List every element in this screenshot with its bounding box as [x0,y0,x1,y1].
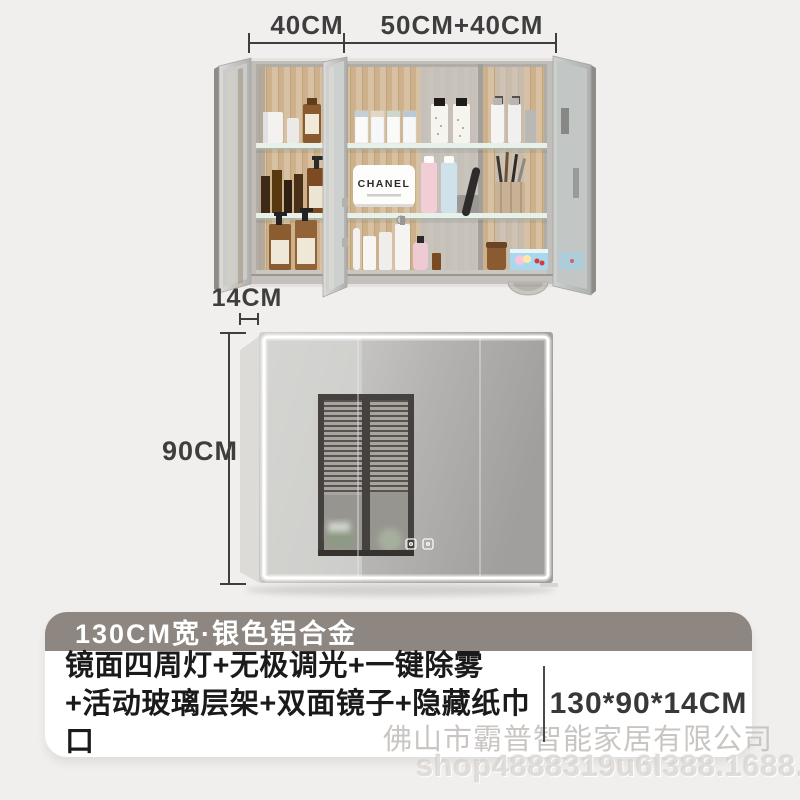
dimension-line [248,42,556,44]
feature-line-1: 镜面四周灯+无极调光+一键除雾 [65,647,543,685]
dimension-label-40cm: 40CM [257,10,357,41]
chanel-brand-box: CHANEL [353,165,415,207]
chanel-label: CHANEL [358,178,411,190]
feature-list: 镜面四周灯+无极调光+一键除雾 +活动玻璃层架+双面镜子+隐藏纸巾口 [65,647,543,761]
info-card-body: 镜面四周灯+无极调光+一键除雾 +活动玻璃层架+双面镜子+隐藏纸巾口 130*9… [45,651,752,757]
left-open-door [214,58,251,293]
window-reflection [313,394,414,556]
shop-url-watermark: shop4888319u6l388.1688.com [416,748,800,784]
cabinet-bottom-lip [250,274,553,276]
closed-cabinet-body [240,332,558,587]
product-image: 40CM 50CM+40CM [0,0,800,800]
dimension-label-14cm: 14CM [205,284,289,313]
spec-title: 130CM宽·银色铝合金 [75,612,357,651]
product-info-card: 130CM宽·银色铝合金 镜面四周灯+无极调光+一键除雾 +活动玻璃层架+双面镜… [45,612,752,757]
right-open-door [553,56,596,295]
open-cabinet-illustration: CHANEL [195,48,605,303]
info-card-header: 130CM宽·银色铝合金 [45,612,752,651]
hidden-tissue-slot [508,282,548,295]
cabinet-shadow [250,284,553,287]
size-spec: 130*90*14CM [545,687,752,721]
tissue-box [510,249,548,270]
closed-cabinet-illustration [150,310,610,600]
dimension-label-50-40cm: 50CM+40CM [362,10,562,41]
middle-open-door [323,57,348,297]
floor-shadow [245,584,555,596]
